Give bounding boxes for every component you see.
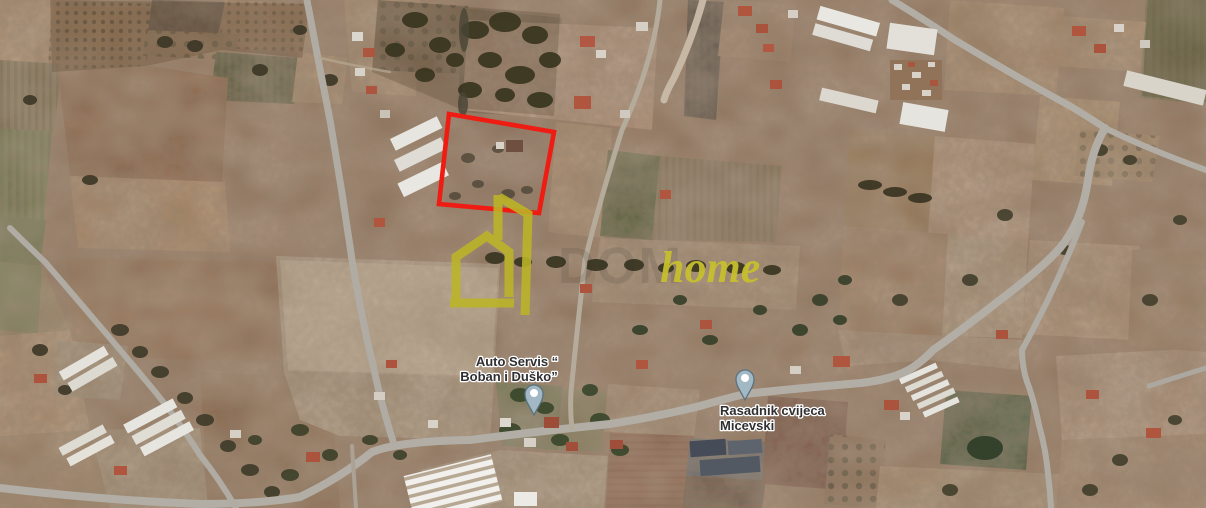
svg-text:Boban i Duško”: Boban i Duško”	[460, 369, 558, 384]
svg-text:home: home	[660, 243, 760, 292]
svg-text:Micevski: Micevski	[720, 418, 774, 433]
svg-text:Rasadnik cvijeca: Rasadnik cvijeca	[720, 403, 826, 418]
svg-text:Auto Servis “: Auto Servis “	[476, 354, 558, 369]
